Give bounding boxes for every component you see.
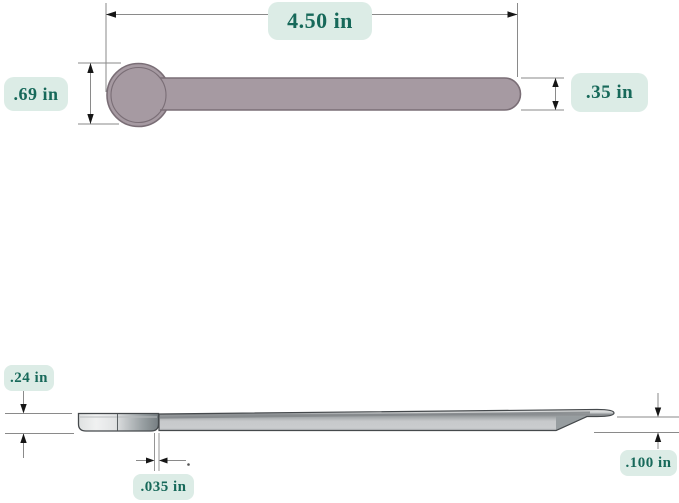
arrowhead-down-icon	[20, 404, 26, 414]
arrowhead-left-icon	[106, 11, 116, 17]
arrowhead-up-icon	[655, 433, 661, 443]
arrowhead-right-icon	[508, 11, 518, 17]
edge-thickness-dimension-label: .035 in	[133, 474, 194, 500]
handle-width-dimension	[521, 78, 564, 110]
head-depth-dimension-label: .24 in	[4, 365, 54, 391]
arrowhead-up-icon	[87, 63, 93, 73]
head-depth-dimension	[5, 391, 74, 458]
scoop-handle-top	[160, 78, 521, 110]
side-view	[5, 391, 679, 471]
arrowhead-left-icon	[159, 458, 168, 464]
arrowhead-down-icon	[87, 114, 93, 124]
tip-thickness-dimension-label: .100 in	[620, 450, 677, 476]
arrowhead-down-icon	[552, 101, 558, 110]
edge-thickness-dimension	[136, 433, 190, 471]
arrowhead-up-icon	[552, 78, 558, 87]
leader-dot	[187, 463, 190, 466]
length-dimension-label: 4.50 in	[268, 2, 372, 40]
tip-thickness-dimension	[594, 393, 679, 449]
scoop-bowl-profile	[79, 414, 159, 432]
arrowhead-right-icon	[146, 458, 155, 464]
arrowhead-up-icon	[20, 434, 26, 444]
arrowhead-down-icon	[655, 408, 661, 418]
head-diameter-dimension-label: .69 in	[4, 77, 68, 111]
handle-width-dimension-label: .35 in	[571, 73, 648, 112]
drawing-canvas: 4.50 in .69 in .35 in .24 in .035 in .10…	[0, 0, 679, 503]
